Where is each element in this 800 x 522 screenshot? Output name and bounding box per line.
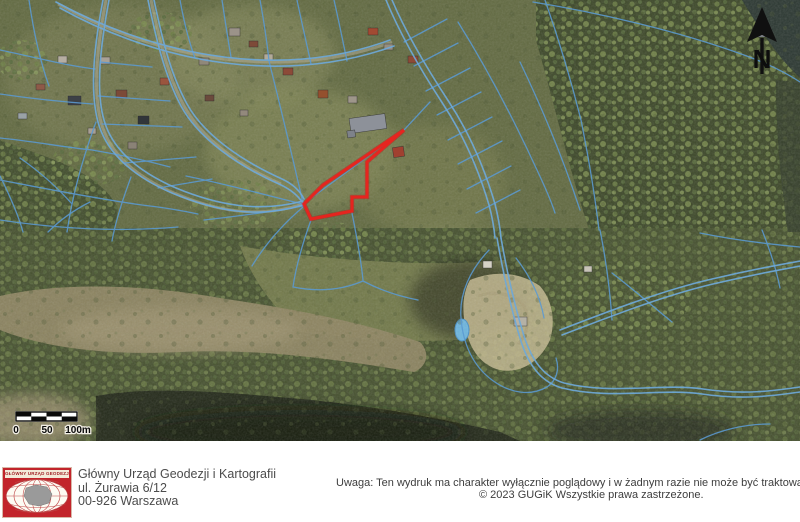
scale-label-0: 0 — [13, 425, 19, 436]
disclaimer-notice: Uwaga: Ten wydruk ma charakter wyłącznie… — [336, 477, 800, 489]
org-address-block: Główny Urząd Geodezji i Kartografii ul. … — [78, 468, 276, 509]
org-address-street: ul. Żurawia 6/12 — [78, 482, 276, 496]
print-page: N 0 50 100m 322921,60 702409,64 GŁÓWNY U… — [0, 0, 800, 522]
org-address-city: 00-926 Warszawa — [78, 495, 276, 509]
copyright-line: © 2023 GUGiK Wszystkie prawa zastrzeżone… — [479, 489, 704, 501]
scale-label-100m: 100m — [65, 425, 91, 436]
gugik-logo-globe — [3, 477, 71, 517]
scale-label-50: 50 — [41, 425, 53, 436]
org-name: Główny Urząd Geodezji i Kartografii — [78, 468, 276, 482]
gugik-logo: GŁÓWNY URZĄD GEODEZJI I KARTOGRAFII — [2, 467, 72, 518]
footer: GŁÓWNY URZĄD GEODEZJI I KARTOGRAFII — [0, 441, 800, 522]
map-canvas[interactable]: N 0 50 100m — [0, 0, 800, 441]
terrain-layer — [0, 0, 800, 441]
map-viewport[interactable]: N 0 50 100m — [0, 0, 800, 441]
north-arrow-label: N — [753, 44, 772, 74]
